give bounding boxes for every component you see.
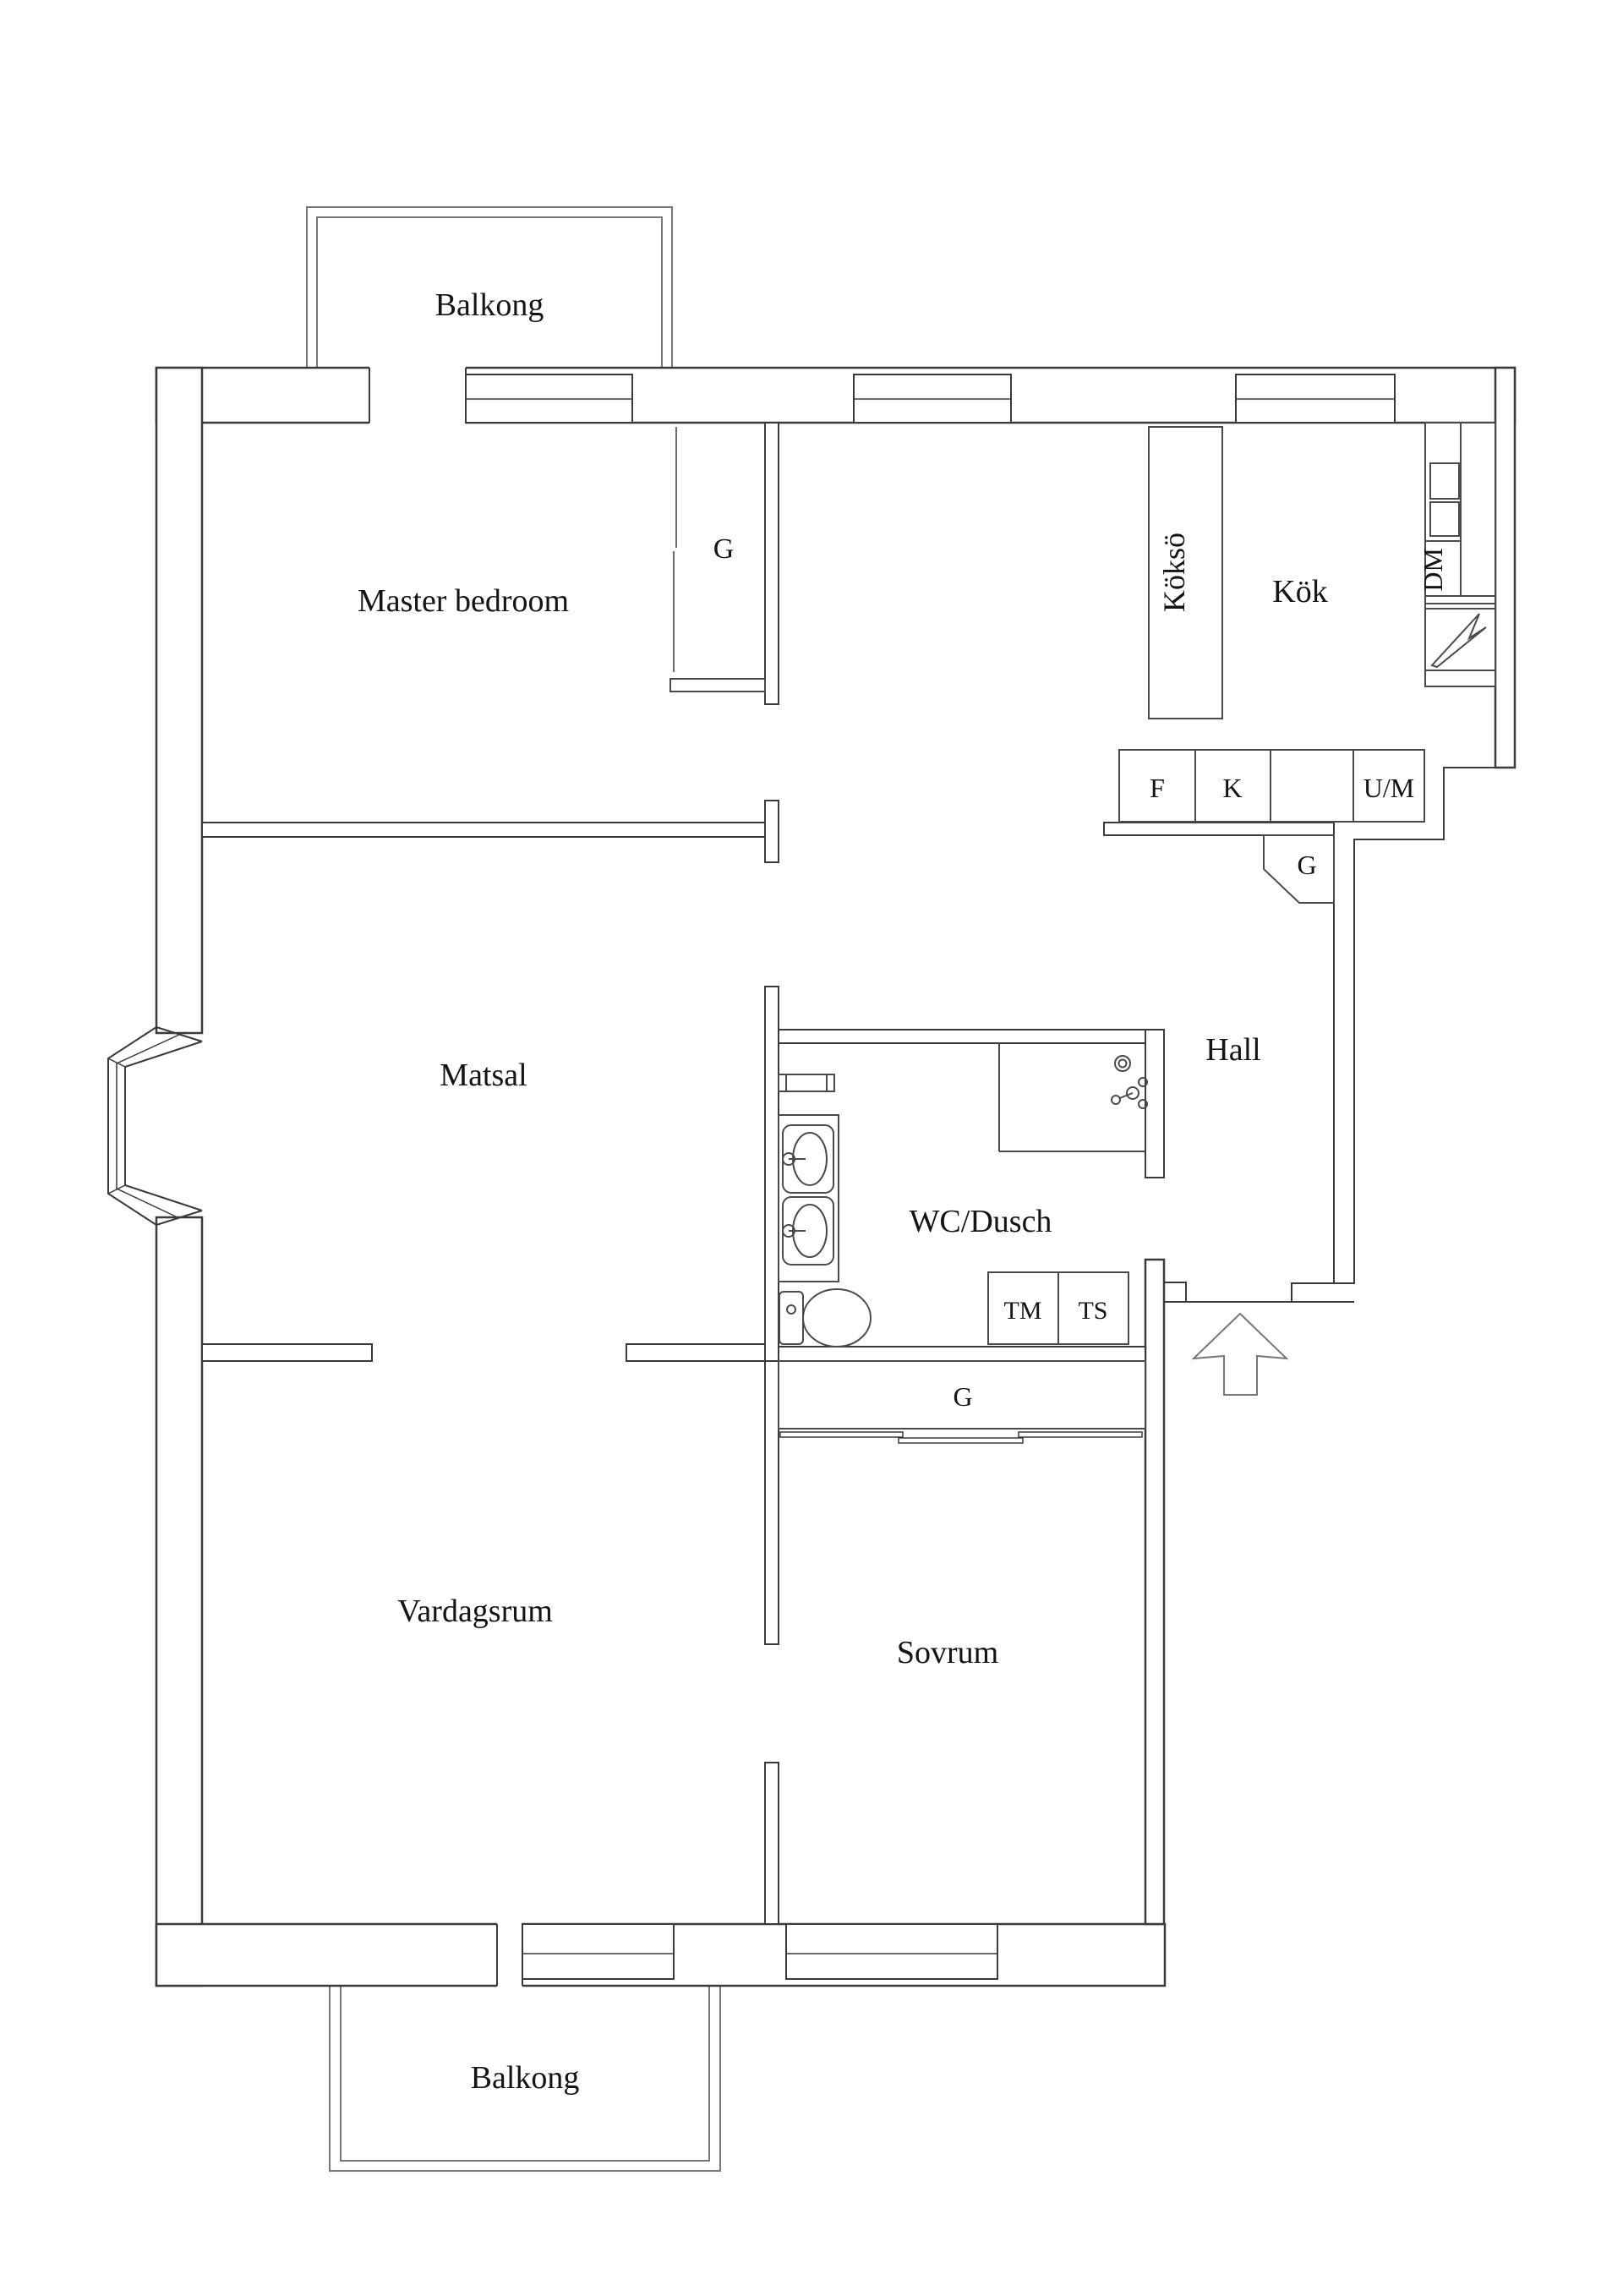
wall-matsal-living-left <box>202 1344 372 1361</box>
label-bedroom: Sovrum <box>897 1635 998 1670</box>
label-oven-microwave: U/M <box>1363 773 1414 803</box>
sink-bowl-1 <box>1430 463 1459 499</box>
wall-wc-right <box>1145 1030 1164 1178</box>
entry-left-jamb <box>1164 1282 1186 1302</box>
shower-drain-inner <box>1119 1060 1127 1068</box>
label-kitchen-island: Köksö <box>1157 533 1191 612</box>
label-kitchen: Kök <box>1272 574 1327 610</box>
label-fridge: F <box>1150 773 1165 803</box>
balcony-door-top-gap <box>369 366 466 424</box>
shower-mixer-handle <box>1112 1096 1120 1104</box>
master-wardrobe-base <box>670 679 765 692</box>
label-closet-bedroom: G <box>953 1381 972 1412</box>
label-wardrobe-master: G <box>713 533 735 565</box>
sink-bowl-2 <box>1430 502 1459 536</box>
appliance-blank-cabinet <box>1271 750 1353 822</box>
wall-master-matsal <box>202 823 765 837</box>
wall-kitchen-hall <box>1104 823 1334 835</box>
wall-door-jamb-stub <box>765 801 779 862</box>
bay-glass-midline <box>117 1035 179 1218</box>
window-bottom-2 <box>786 1924 997 1979</box>
entrance-arrow-icon <box>1194 1314 1287 1395</box>
wall-right-lower <box>1145 1260 1164 1924</box>
label-master-bedroom: Master bedroom <box>358 583 569 619</box>
floor-plan-page: Balkong Master bedroom G Köksö Kök DM F … <box>0 0 1623 2296</box>
label-balcony-top: Balkong <box>435 287 544 323</box>
room-labels: Balkong Master bedroom G Köksö Kök DM F … <box>358 287 1448 2096</box>
wall-matsal-living-right <box>626 1344 765 1361</box>
wall-living-bedroom-upper <box>765 1361 779 1644</box>
label-dining-room: Matsal <box>440 1058 527 1093</box>
bay-inner-line <box>125 1041 202 1211</box>
label-living-room: Vardagsrum <box>397 1594 553 1629</box>
label-washing-machine: TM <box>1004 1297 1042 1325</box>
wall-left-upper <box>156 368 202 1033</box>
bedroom-closet-slider-3 <box>1019 1432 1142 1437</box>
bedroom-closet-slider-2 <box>899 1438 1023 1443</box>
label-balcony-bottom: Balkong <box>471 2060 580 2096</box>
label-dishwasher: DM <box>1418 548 1448 592</box>
wall-bedroom-kitchen <box>765 423 779 704</box>
floor-plan-svg: Balkong Master bedroom G Köksö Kök DM F … <box>0 0 1623 2296</box>
wall-left-lower <box>156 1217 202 1986</box>
toilet-tank <box>779 1292 803 1344</box>
wall-wc-left <box>765 987 779 1361</box>
wall-wc-bottom <box>779 1347 1145 1361</box>
wall-wc-top <box>779 1030 1161 1043</box>
radiator-cap-left <box>779 1074 786 1091</box>
wall-right-kitchen <box>1495 368 1515 768</box>
bedroom-closet-slider-1 <box>780 1432 903 1437</box>
radiator-cap-right <box>827 1074 834 1091</box>
toilet-bowl <box>803 1289 871 1347</box>
balcony-door-bottom-gap <box>497 1922 522 1987</box>
window-bottom-1 <box>522 1924 674 1979</box>
label-dryer: TS <box>1078 1297 1107 1325</box>
wall-living-bedroom-lower <box>765 1763 779 1924</box>
label-hall: Hall <box>1205 1032 1260 1068</box>
label-freezer: K <box>1222 773 1242 803</box>
shower-drain-outer <box>1115 1056 1130 1071</box>
label-bathroom: WC/Dusch <box>910 1204 1052 1239</box>
label-closet-hall: G <box>1297 850 1316 880</box>
bay-window <box>108 1027 202 1225</box>
kitchen-fixtures <box>1119 423 1495 822</box>
